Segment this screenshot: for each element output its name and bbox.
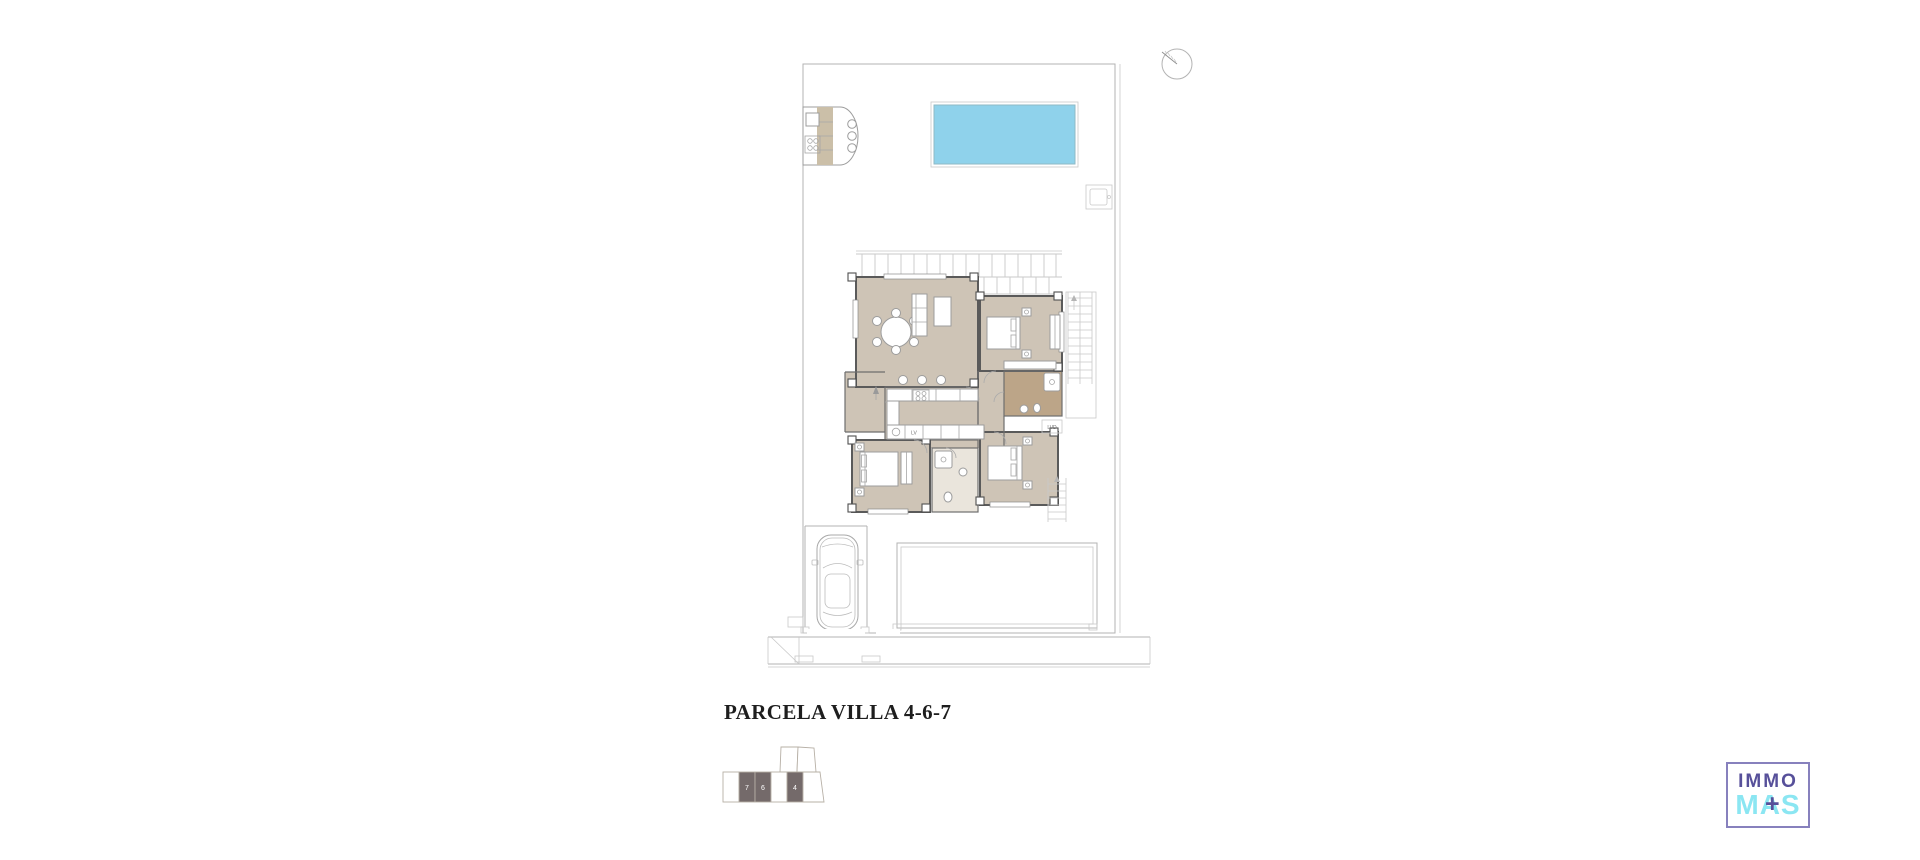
dishwasher-label: LV: [911, 431, 917, 437]
shower: [1044, 373, 1060, 391]
page-canvas: LV: [0, 0, 1920, 860]
dining-table: [881, 317, 911, 347]
brand-logo: IMMO MAS +: [1726, 762, 1810, 828]
pool-water: [934, 105, 1075, 164]
laundry-label: LVD: [1047, 425, 1057, 431]
logo-plus-icon: +: [1765, 792, 1780, 817]
car-top-view: [812, 535, 863, 630]
outdoor-sink: [806, 113, 819, 126]
bar-stools: [848, 120, 857, 153]
key-plan-units: 7 6 4: [723, 747, 824, 802]
toilet: [1034, 404, 1041, 413]
nightstand: [1022, 350, 1031, 358]
washbasin: [1020, 405, 1028, 413]
sidewalk: [768, 629, 1150, 667]
sofa: [912, 294, 927, 336]
toilet: [944, 492, 952, 502]
north-arrow-icon: [1162, 49, 1192, 79]
staircase: [1066, 292, 1096, 418]
breakfast-stools: [899, 376, 946, 385]
key-plan-unit-label: 4: [793, 785, 797, 792]
nightstand: [1022, 308, 1031, 316]
site-plan: LV: [740, 28, 1210, 688]
key-plan-unit-label: 7: [745, 785, 749, 792]
double-bed: [987, 317, 1020, 349]
double-bed: [860, 452, 898, 486]
plan-title: PARCELA VILLA 4-6-7: [724, 700, 951, 725]
shower: [935, 451, 952, 468]
bench: [1004, 361, 1056, 369]
terrace: [893, 543, 1097, 630]
nightstand: [1023, 481, 1032, 489]
swimming-pool: [931, 102, 1078, 167]
coffee-table: [934, 297, 951, 326]
key-plan: 7 6 4: [715, 742, 830, 807]
key-plan-unit-label: 6: [761, 785, 765, 792]
washbasin: [959, 468, 967, 476]
kitchen-counter: [887, 389, 978, 401]
kitchen-island: [887, 425, 984, 439]
nightstand: [855, 488, 864, 496]
nightstand: [1023, 437, 1032, 445]
outdoor-kitchen: [803, 107, 858, 165]
technical-box: [1086, 185, 1112, 209]
nightstand: [855, 443, 864, 451]
